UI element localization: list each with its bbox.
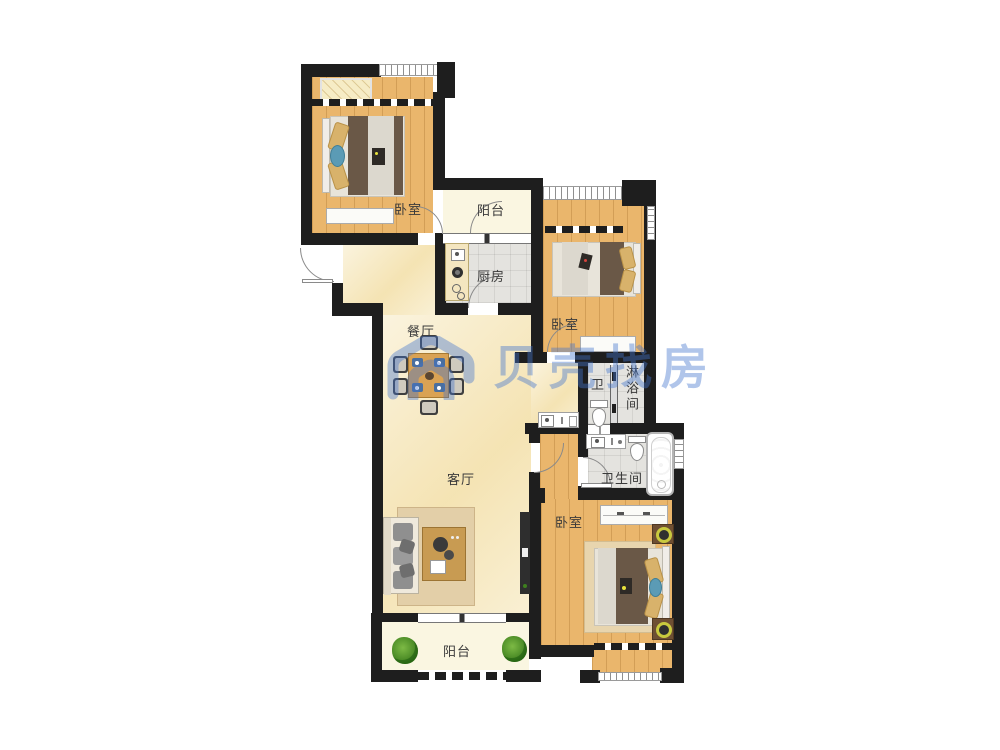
dining-table [408, 353, 449, 398]
headboard [322, 118, 330, 193]
entrance-door-leaf [302, 279, 333, 283]
wall [529, 645, 594, 657]
lamp-icon [656, 622, 672, 638]
room-label-balcony-top: 阳台 [477, 200, 505, 219]
room-label-balcony-bottom: 阳台 [443, 641, 471, 660]
wardrobe [600, 505, 668, 525]
wall [515, 352, 547, 363]
round-pillow [649, 578, 662, 597]
bay-dashed-line [545, 226, 623, 233]
wall [372, 316, 383, 622]
wall [301, 233, 418, 245]
wall [498, 303, 543, 315]
room-label-bedroom-top-left: 卧室 [394, 199, 422, 218]
floor-plan: 卧室 阳台 厨房 卧室 餐厅 卫 淋浴间 客厅 卫生间 卧室 阳台 贝壳找房 [0, 0, 1000, 750]
dining-chair [449, 356, 464, 373]
coffee-table [422, 527, 466, 581]
wall [371, 670, 418, 682]
room-label-shower: 淋浴间 [621, 365, 640, 425]
bathroom-counter [586, 434, 626, 449]
wall [531, 184, 543, 363]
nightstand [652, 524, 674, 544]
wall [529, 430, 540, 443]
wall [575, 352, 650, 363]
bay-dashed-line [594, 643, 672, 650]
wall [301, 64, 312, 245]
wall [301, 64, 381, 77]
toilet [590, 400, 608, 428]
window [647, 206, 655, 240]
nightstand [652, 618, 674, 640]
bed [594, 546, 670, 626]
headboard [633, 243, 641, 294]
round-pillow [330, 145, 345, 167]
sliding-door [418, 613, 506, 623]
dining-chair [449, 378, 464, 395]
dining-chair [393, 356, 408, 373]
window [674, 439, 684, 469]
room-label-dining: 餐厅 [407, 321, 435, 340]
headboard [662, 546, 670, 626]
room-label-bedroom-middle: 卧室 [551, 314, 579, 333]
wall [529, 497, 541, 659]
tray [372, 148, 385, 165]
wall [612, 404, 616, 413]
toilet [628, 436, 646, 462]
bed [322, 116, 403, 195]
bathtub [646, 432, 674, 496]
wall [580, 670, 600, 683]
room-label-bedroom-bottom: 卧室 [555, 512, 583, 531]
window [598, 672, 662, 681]
wall [506, 670, 541, 682]
wall [660, 668, 684, 683]
lamp-icon [656, 527, 672, 543]
dining-set [393, 335, 465, 416]
dresser-bench [326, 208, 394, 224]
wall [433, 92, 445, 190]
balcony-railing-dashed [418, 672, 506, 680]
room-label-water-closet: 卫 [591, 374, 605, 393]
window [543, 186, 625, 200]
tv [520, 512, 530, 594]
dining-chair [393, 378, 408, 395]
cabinet [580, 336, 636, 352]
sofa [383, 517, 419, 594]
window [379, 64, 439, 76]
room-label-living: 客厅 [447, 469, 475, 488]
wall [612, 372, 616, 381]
wall [435, 303, 468, 315]
wall [332, 303, 383, 316]
wall [622, 180, 656, 206]
washbasin-counter [538, 412, 579, 428]
bed [552, 242, 641, 295]
kitchen-counter [445, 243, 469, 301]
dining-chair [420, 400, 438, 415]
plant-icon [502, 636, 527, 662]
wall [506, 613, 541, 622]
entrance-door-swing [300, 248, 334, 282]
bay-dashed-line [312, 99, 438, 106]
plant-icon [392, 637, 418, 664]
room-label-kitchen: 厨房 [477, 266, 505, 285]
wall [441, 178, 543, 190]
room-label-bathroom: 卫生间 [601, 468, 643, 487]
